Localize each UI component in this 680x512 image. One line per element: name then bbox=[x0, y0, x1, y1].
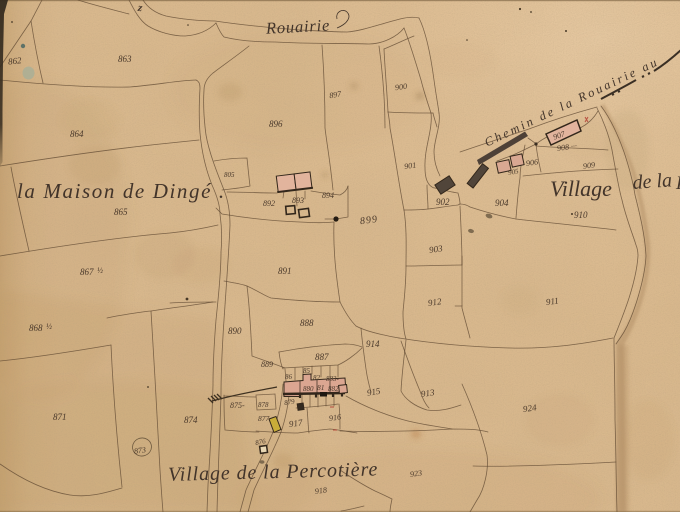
svg-text:909: 909 bbox=[582, 160, 595, 171]
svg-text:894: 894 bbox=[322, 191, 334, 200]
svg-text:888: 888 bbox=[300, 318, 314, 328]
svg-text:la Maison de Dingé .: la Maison de Dingé . bbox=[17, 179, 226, 203]
svg-text:912: 912 bbox=[427, 296, 442, 308]
svg-text:911: 911 bbox=[545, 295, 559, 307]
svg-text:82: 82 bbox=[313, 374, 321, 382]
svg-text:903: 903 bbox=[428, 243, 443, 255]
svg-text:879: 879 bbox=[284, 397, 296, 406]
svg-text:904: 904 bbox=[495, 198, 509, 208]
svg-text:914: 914 bbox=[366, 339, 380, 349]
svg-text:½: ½ bbox=[97, 266, 103, 275]
svg-text:887: 887 bbox=[315, 352, 329, 362]
svg-text:896: 896 bbox=[269, 119, 283, 129]
svg-text:864: 864 bbox=[70, 129, 84, 139]
svg-text:923: 923 bbox=[409, 468, 422, 479]
svg-text:902: 902 bbox=[436, 197, 450, 207]
svg-text:868: 868 bbox=[29, 323, 43, 333]
svg-text:871: 871 bbox=[53, 412, 67, 422]
svg-text:917: 917 bbox=[288, 417, 303, 429]
svg-text:½: ½ bbox=[46, 322, 52, 331]
svg-text:893: 893 bbox=[292, 196, 304, 205]
svg-text:875-: 875- bbox=[230, 401, 245, 410]
svg-text:Village: Village bbox=[550, 176, 612, 201]
svg-text:865: 865 bbox=[114, 207, 128, 217]
svg-text:883-: 883- bbox=[326, 375, 340, 383]
svg-text:906: 906 bbox=[525, 157, 538, 168]
svg-text:805: 805 bbox=[224, 171, 235, 179]
svg-text:900: 900 bbox=[394, 82, 407, 93]
svg-text:863: 863 bbox=[118, 54, 132, 64]
svg-text:901: 901 bbox=[404, 160, 417, 171]
svg-text:85: 85 bbox=[303, 367, 311, 375]
svg-text:918: 918 bbox=[314, 485, 327, 496]
svg-text:873: 873 bbox=[133, 445, 146, 456]
svg-text:924: 924 bbox=[522, 402, 537, 414]
svg-text:882: 882 bbox=[328, 385, 339, 393]
svg-text:878: 878 bbox=[258, 401, 269, 409]
svg-text:86: 86 bbox=[285, 373, 293, 381]
svg-text:913: 913 bbox=[420, 387, 435, 399]
svg-text:874: 874 bbox=[184, 415, 198, 425]
svg-text:910: 910 bbox=[574, 210, 588, 220]
svg-text:891: 891 bbox=[278, 266, 292, 276]
svg-text:890: 890 bbox=[228, 326, 242, 336]
svg-text:916: 916 bbox=[328, 412, 341, 423]
svg-text:892: 892 bbox=[263, 199, 275, 208]
svg-text:L: L bbox=[675, 173, 680, 194]
svg-text:de la: de la bbox=[632, 169, 673, 194]
svg-text:889: 889 bbox=[261, 360, 273, 369]
svg-text:880: 880 bbox=[303, 385, 314, 393]
svg-text:867: 867 bbox=[80, 267, 94, 277]
svg-text:862: 862 bbox=[8, 55, 23, 66]
svg-text:Rouairie: Rouairie bbox=[264, 15, 330, 37]
svg-text:81: 81 bbox=[317, 383, 325, 392]
svg-text:877: 877 bbox=[258, 414, 270, 423]
